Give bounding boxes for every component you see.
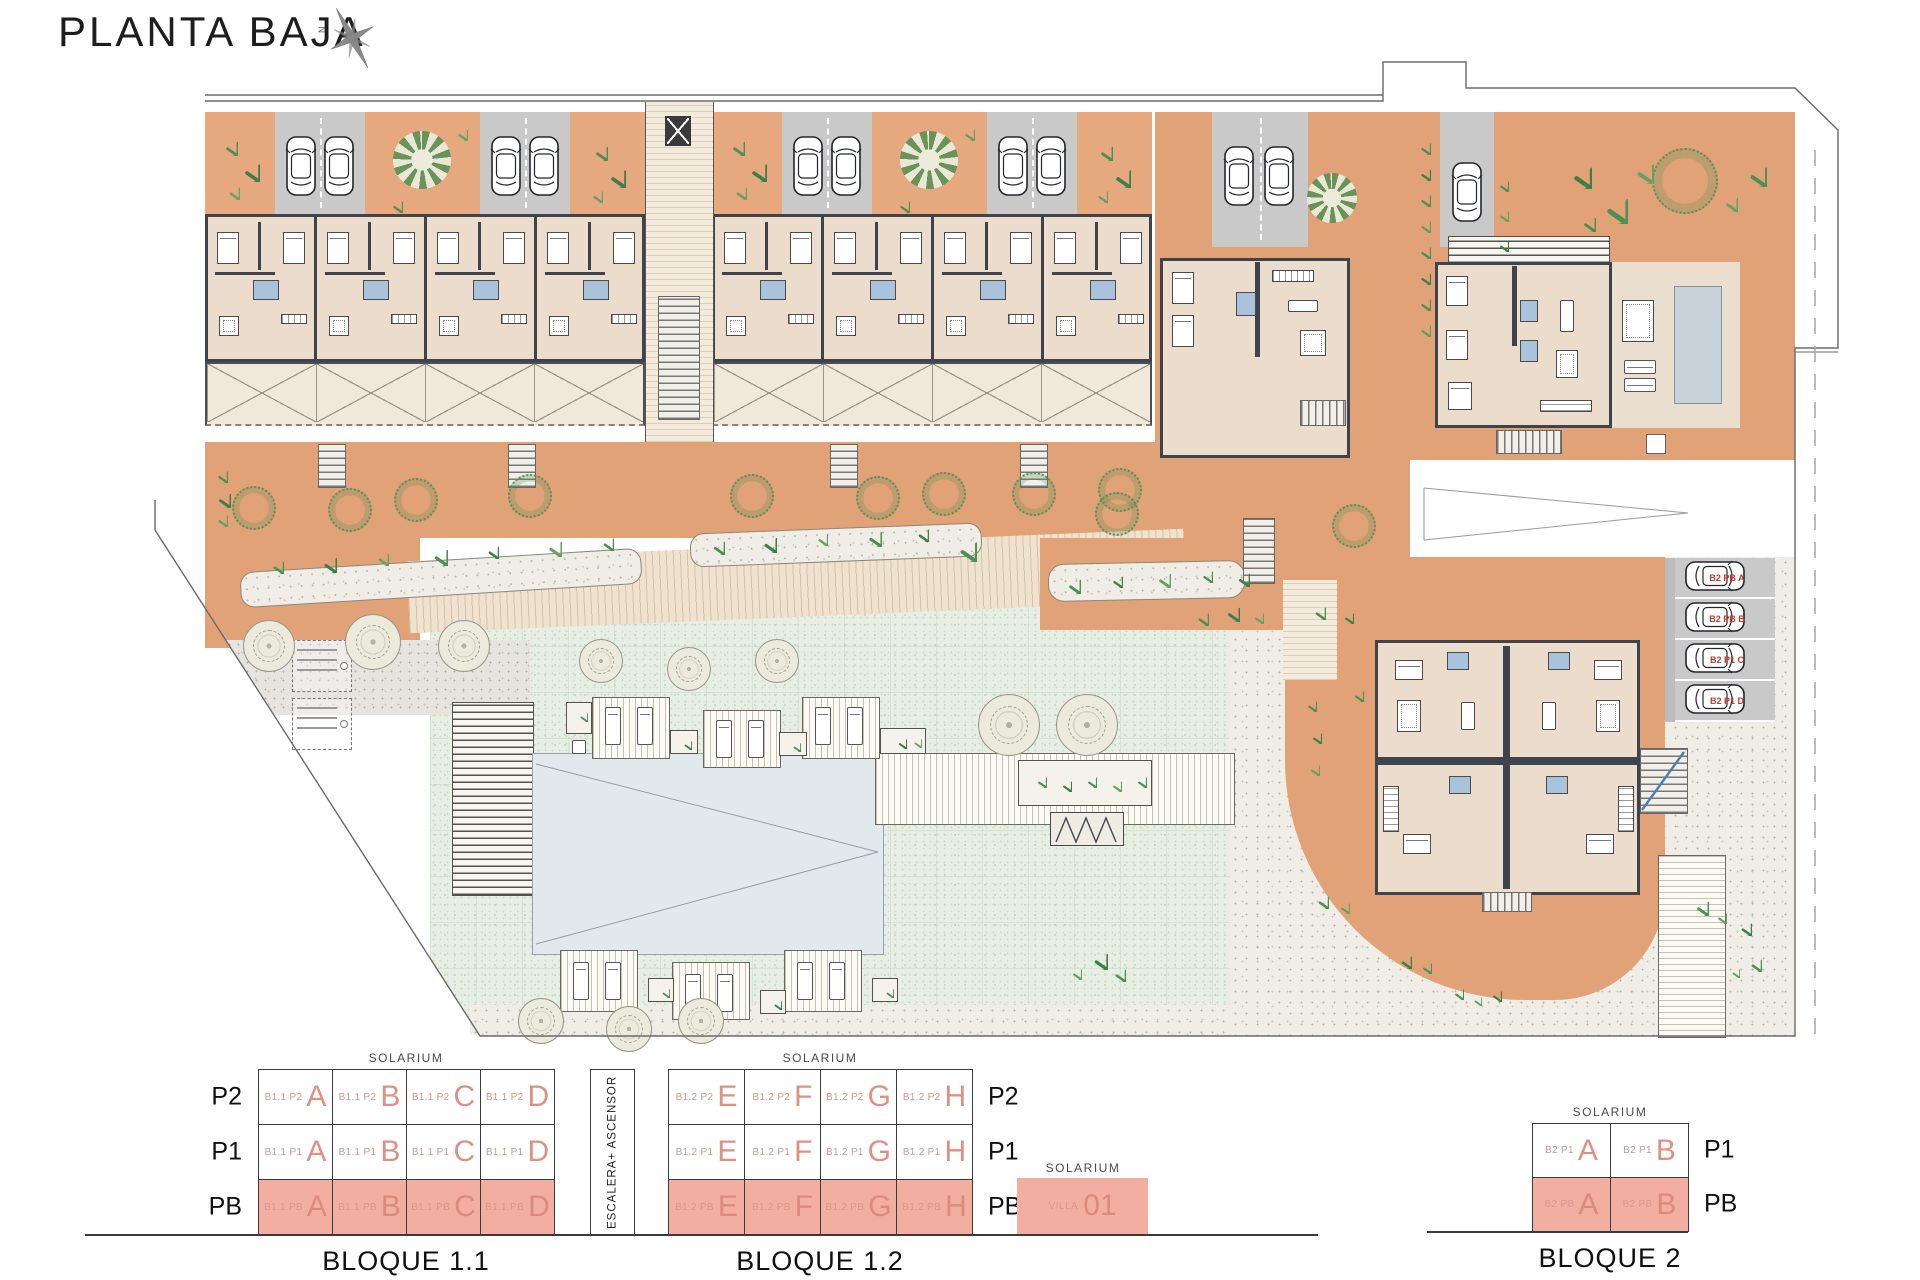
elevator-icon [665,116,691,146]
floor-plan-canvas: PLANTA BAJA N B2 PB AB2 PB BB2 P1 CB2 P1… [0,0,1920,1280]
inner-wall [765,222,768,270]
unit-cell: B1.2 P2H [896,1069,973,1125]
unit-code: B1.1 P1 [339,1147,377,1158]
palm-tree-icon [1405,285,1431,311]
palm-tree-icon [212,172,240,200]
car-icon [996,130,1030,202]
palm-tree-icon [1706,180,1738,212]
palm-tree-icon [1298,592,1326,620]
block-1-1-terrace-brace [207,364,316,422]
bathroom-icon [363,280,389,300]
unit-letter: D [528,1192,550,1222]
bed-icon [1403,834,1431,854]
unit-code: B2 P1 [1623,1145,1652,1156]
block-1-1-terrace-brace [316,364,425,422]
swimming-pool [532,753,884,955]
ground-baseline [85,1234,1318,1236]
floor-label: PB [1704,1190,1737,1219]
stair-icon [1482,892,1532,912]
unit-letter: F [794,1137,812,1167]
palm-tree-icon [1187,557,1213,583]
unit-cell: B1.2 P2E [668,1069,745,1125]
inner-wall [1378,757,1637,765]
villa-pool [1674,286,1722,404]
unit-cell: B1.1 P1A [258,1124,333,1180]
unit-cell: B1.1 P1D [480,1124,555,1180]
inner-wall [588,222,591,270]
outdoor-table-icon [1622,300,1654,342]
inner-wall [325,272,385,275]
unit-code: B1.1 P1 [412,1147,450,1158]
unit-cell: B1.1 PBD [480,1179,555,1235]
lounger-deck [592,697,670,759]
car-icon [791,130,825,202]
table-icon [726,316,746,336]
kitchen-icon [1008,314,1034,324]
parking-space-label: B2 P1 C [1710,655,1744,665]
unit-code: B1.2 PB [752,1202,791,1213]
palm-tree-icon [1405,259,1431,285]
sun-lounger-icon [637,707,653,745]
car-icon [489,130,523,202]
note-box [292,640,352,692]
palm-tree-icon [781,732,801,752]
ground-baseline [1427,1231,1688,1233]
solarium-label: SOLARIUM [1573,1105,1648,1119]
unit-code: B2 PB [1623,1199,1653,1210]
tree-canopy-icon [1056,694,1118,756]
unit-cell: B1.1 P2A [258,1069,333,1125]
palm-tree-icon [1298,720,1322,744]
bathroom-icon [870,280,896,300]
kitchen-icon [1618,786,1634,832]
bed-icon [1446,330,1468,360]
palm-tree-icon [442,115,468,141]
sofa-icon [1560,300,1574,332]
parking-backer [1665,558,1675,722]
unit-code: B1.2 P1 [752,1147,790,1158]
sun-lounger-icon [748,720,764,758]
tree-canopy-icon [678,998,724,1044]
unit-code: B1.2 P1 [826,1147,864,1158]
unit-cell: B1.1 PBC [406,1179,481,1235]
block-1-1-party-wall [534,216,537,360]
pool-bench [1050,812,1124,846]
palm-tree-icon [1485,198,1509,222]
block-1-2-terrace-brace [823,364,932,422]
palm-tree-icon [1724,908,1752,936]
palm-tree-icon [743,519,777,553]
lounger-deck [560,950,638,1012]
table-icon [1397,700,1421,732]
car-icon [284,130,318,202]
unit-code: B1.2 PB [825,1202,864,1213]
floor-label: P1 [211,1137,242,1166]
bed-icon [437,232,459,264]
palm-tree-icon [933,518,977,562]
unit-cell: B2 PBA [1532,1177,1611,1232]
palm-tree-icon [1720,958,1740,978]
tree-canopy-icon [978,694,1040,756]
unit-cell: B1.1 P2C [406,1069,481,1125]
kitchen-icon [1118,314,1144,324]
bed-icon [1586,834,1614,854]
shrub-circle [922,472,966,516]
unit-letter: F [795,1192,813,1222]
palm-tree-icon [1139,556,1171,588]
unit-cell: B1.2 PBG [820,1179,897,1235]
block-1-2-terrace-brace [1041,364,1150,422]
unit-code: B2 PB [1545,1199,1575,1210]
unit-letter: F [794,1082,812,1112]
unit-code: B2 P1 [1545,1145,1574,1156]
inner-wall [545,272,605,275]
stair-icon [1640,748,1688,814]
bathroom-icon [1520,300,1538,322]
palm-tree-icon [874,978,894,998]
unit-cell: B1.2 P1G [820,1124,897,1180]
block-1-1-terrace-brace [534,364,643,422]
kitchen-icon [1272,270,1314,282]
palm-tree-icon [202,501,228,527]
unit-cell: B2 P1A [1532,1123,1611,1178]
palm-tree-icon [1220,557,1250,587]
unit-code: B1.2 P1 [676,1147,714,1158]
unit-cell: B1.2 P2F [744,1069,821,1125]
sun-lounger-icon [829,962,845,1000]
palm-tree-icon [1098,768,1122,792]
car-icon [1262,140,1296,212]
parking-space-label: B2 PB B [1709,614,1745,624]
solarium-label: SOLARIUM [783,1051,858,1065]
unit-cell: B1.2 PBE [668,1179,745,1235]
palm-tree-icon [848,513,882,547]
bathroom-icon [760,280,786,300]
sun-lounger-icon [605,707,621,745]
floor-label: P1 [1704,1136,1735,1165]
unit-cell: B1.1 P2B [332,1069,407,1125]
unit-code: B1.1 P2 [339,1092,377,1103]
unit-letter: G [868,1137,891,1167]
palm-tree-icon [1098,954,1126,982]
tree-canopy-icon [579,639,623,683]
shrub-circle [508,474,552,518]
bed-icon [1395,660,1423,680]
bathroom-icon [583,280,609,300]
palm-tree-icon [361,538,389,566]
table-icon [1556,350,1578,378]
palm-tree-icon [1181,598,1209,626]
leafy-tree-icon [1307,173,1357,223]
palm-tree-icon [949,115,975,141]
unit-code: B1.1 P1 [486,1147,524,1158]
unit-letter: A [1578,1190,1598,1220]
bathroom-icon [980,280,1006,300]
unit-cell: B1.1 P1B [332,1124,407,1180]
inner-wall [1503,646,1510,889]
shrub-circle [328,488,372,532]
block-1-2-party-wall [1041,216,1044,360]
unit-letter: H [945,1082,967,1112]
bed-icon [283,232,305,264]
inner-wall [1095,222,1098,270]
block-1-2-terrace-brace [714,364,823,422]
inner-wall [985,222,988,270]
unit-letter: A [306,1137,326,1167]
palm-tree-icon [303,539,337,573]
unit-letter: B [1656,1136,1676,1166]
unit-letter: A [1578,1136,1598,1166]
tree-canopy-icon [755,639,799,683]
unit-letter: B [1656,1190,1676,1220]
unit-letter: H [945,1137,967,1167]
palm-tree-icon [1301,881,1329,909]
table-icon [549,316,569,336]
car-icon [1450,156,1484,228]
bed-icon [834,232,856,264]
palm-tree-icon [1097,562,1123,588]
sofa-icon [1461,702,1475,730]
bed-icon [393,232,415,264]
shrub-circle [730,474,774,518]
sun-lounger-icon [716,720,732,758]
block-1-1-party-wall [424,216,427,360]
palm-tree-icon [1405,207,1431,233]
kitchen-icon [1383,786,1399,832]
palm-tree-icon [1049,562,1081,594]
bathroom-icon [1548,652,1570,670]
side-deck [1658,855,1726,1038]
palm-tree-icon [377,187,403,213]
palm-tree-icon [1208,590,1240,622]
car-icon [322,130,356,202]
stair-icon [658,296,700,420]
unit-code: B1.2 PB [902,1202,941,1213]
unit-code: B1.1 P2 [265,1092,303,1103]
unit-code: B1.1 PB [411,1202,450,1213]
unit-cell: B1.1 P1C [406,1124,481,1180]
table-icon [946,316,966,336]
bathroom-icon [1090,280,1116,300]
palm-tree-icon [672,730,692,750]
tree-canopy-icon [518,998,564,1044]
floor-label: P2 [211,1082,242,1111]
unit-code: B1.1 PB [264,1202,303,1213]
unit-cell: B2 PBB [1610,1177,1689,1232]
sofa-icon [1288,300,1318,312]
unit-code: B1.1 P2 [412,1092,450,1103]
shrub-circle [394,478,438,522]
tree-canopy-icon [438,620,490,672]
palm-tree-icon [586,523,614,551]
inner-wall [478,222,481,270]
palm-tree-icon [1326,890,1350,914]
bed-icon [547,232,569,264]
villa-schematic-cell: VILLA01 [1017,1178,1148,1234]
block-caption: BLOQUE 1.1 [322,1246,490,1277]
sun-lounger-icon [605,962,621,1000]
palm-tree-icon [412,530,448,566]
kitchen-icon [611,314,637,324]
palm-tree-icon [695,525,725,555]
bathroom-icon [473,280,499,300]
bathroom-icon [1520,340,1538,362]
driveway-white [1410,470,1795,557]
shower-icon [572,740,586,754]
table-icon [1300,330,1326,356]
unit-letter: B [380,1137,400,1167]
inner-wall [875,222,878,270]
block-caption: BLOQUE 1.2 [736,1246,904,1277]
palm-tree-icon [901,514,929,542]
kitchen-icon [501,314,527,324]
utility-box [1646,434,1666,454]
shrub-circle [1332,504,1376,548]
inner-wall [722,272,782,275]
unit-letter: A [306,1082,326,1112]
palm-tree-icon [650,978,670,998]
palm-tree-icon [1405,181,1431,207]
unit-code: B1.1 PB [485,1202,524,1213]
tree-canopy-icon [667,647,711,691]
palm-tree-icon [1073,764,1097,788]
palm-tree-icon [1123,764,1147,788]
palm-tree-icon [568,702,588,722]
bed-icon [944,232,966,264]
palm-tree-icon [1610,140,1654,184]
unit-code: B1.2 P1 [903,1147,941,1158]
palm-tree-icon [1023,764,1047,788]
bed-icon [790,232,812,264]
bed-icon [1010,232,1032,264]
unit-letter: G [868,1192,891,1222]
solarium-label: SOLARIUM [369,1051,444,1065]
bed-icon [217,232,239,264]
inner-wall [215,272,275,275]
palm-tree-icon [902,728,922,748]
unit-cell: B1.1 PBA [258,1179,333,1235]
palm-tree-icon [1405,233,1431,259]
unit-letter: G [868,1082,891,1112]
palm-tree-icon [1240,600,1264,624]
parking-space-label: B2 P1 D [1710,696,1744,706]
inner-wall [1512,266,1517,346]
unit-letter: B [381,1192,401,1222]
palm-tree-icon [719,172,747,200]
palm-tree-icon [1340,678,1364,702]
sun-lounger-icon [797,962,813,1000]
kitchen-icon [1540,400,1592,412]
block-1-2-party-wall [931,216,934,360]
unit-letter: E [718,1192,738,1222]
kitchen-icon [788,314,814,324]
palm-tree-icon [1440,976,1464,1000]
unit-letter: A [307,1192,327,1222]
unit-code: B1.2 P2 [903,1092,941,1103]
unit-code: B1.1 PB [338,1202,377,1213]
kitchen-icon [281,314,307,324]
compass-n-label: N [317,27,327,34]
lounger-deck [703,710,781,768]
car-icon [829,130,863,202]
table-icon [1596,700,1620,732]
palm-tree-icon [1405,311,1431,337]
tree-canopy-icon [243,620,295,672]
unit-letter: C [454,1192,476,1222]
table-icon [439,316,459,336]
unit-letter: E [717,1082,737,1112]
unit-cell: B2 P1B [1610,1123,1689,1178]
villa-number: 01 [1083,1191,1116,1221]
palm-tree-icon [1408,950,1432,974]
palm-tree-icon [1058,956,1082,980]
unit-cell: B1.2 PBH [896,1179,973,1235]
block-1-1-terrace-brace [425,364,534,422]
unit-letter: C [454,1082,476,1112]
palm-tree-icon [1330,600,1354,624]
unit-letter: H [945,1192,967,1222]
unit-cell: B1.2 P2G [820,1069,897,1125]
unit-letter: D [528,1137,550,1167]
villa-pergola [1448,236,1610,264]
palm-tree-icon [577,177,603,203]
bed-icon [1172,315,1194,347]
bed-icon [1594,660,1622,680]
unit-cell: B1.2 P1H [896,1124,973,1180]
unit-code: B1.2 P2 [826,1092,864,1103]
bathroom-icon [253,280,279,300]
kitchen-icon [391,314,417,324]
palm-tree-icon [1485,228,1509,252]
unit-code: B1.2 P2 [676,1092,714,1103]
car-icon [1034,130,1068,202]
palm-tree-icon [1296,752,1320,776]
sofa-icon [1542,702,1556,730]
table-icon [836,316,856,336]
block-caption: BLOQUE 2 [1538,1243,1681,1274]
shrub-circle [232,486,276,530]
inner-wall [435,272,495,275]
palm-tree-icon [1405,129,1431,155]
villa-name: VILLA [1048,1201,1078,1212]
bathroom-icon [1546,776,1568,794]
pool-pergola [452,702,534,896]
sun-lounger-icon [573,962,589,1000]
palm-tree-icon [528,523,562,557]
bed-icon [1120,232,1142,264]
shrub-circle [1012,472,1056,516]
bathroom-icon [1447,652,1469,670]
elevator-schematic-label: ESCALERA+ ASCENSOR [590,1069,635,1235]
palm-tree-icon [1082,177,1108,203]
sun-lounger-icon [847,707,863,745]
palm-tree-icon [1485,168,1509,192]
palm-tree-icon [1405,155,1431,181]
unit-letter: B [380,1082,400,1112]
block-1-2-terrace-brace [932,364,1041,422]
unit-code: B1.1 P1 [265,1147,303,1158]
stair-icon [830,444,858,488]
unit-code: B1.1 P2 [486,1092,524,1103]
bed-icon [724,232,746,264]
bed-icon [503,232,525,264]
inner-wall [942,272,1002,275]
lounger-deck [784,950,862,1012]
parking-space-label: B2 PB A [1709,573,1744,583]
palm-tree-icon [762,990,782,1010]
tree-canopy-icon [345,614,401,670]
unit-letter: E [717,1137,737,1167]
